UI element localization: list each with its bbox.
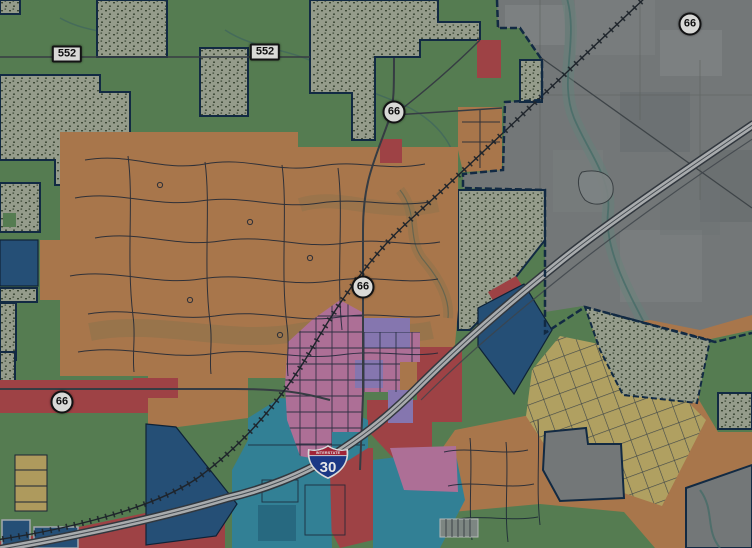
route-66-shield-northeast: 66: [679, 13, 702, 36]
route-66-label: 66: [684, 19, 696, 30]
route-66-label: 66: [56, 397, 68, 408]
interstate-number: 30: [320, 459, 337, 476]
route-552-label: 552: [58, 49, 76, 60]
route-552-label: 552: [256, 47, 274, 58]
route-66-shield-north: 66: [383, 101, 406, 124]
route-66-shield-southwest: 66: [51, 391, 74, 414]
interstate-30-shield-graphic: INTERSTATE 30: [306, 444, 350, 480]
route-66-label: 66: [357, 282, 369, 293]
zoning-map-layers: [0, 0, 752, 548]
route-552-shield-west: 552: [52, 46, 82, 63]
route-66-label: 66: [388, 107, 400, 118]
tile-dim-overlay: [0, 0, 752, 548]
route-552-shield-east: 552: [250, 44, 280, 61]
route-66-shield-center: 66: [352, 276, 375, 299]
interstate-30-shield: INTERSTATE 30: [306, 444, 350, 480]
map-canvas[interactable]: 552 552 66 66 66 66 INTERSTATE 30: [0, 0, 752, 548]
interstate-banner-text: INTERSTATE: [316, 451, 341, 455]
